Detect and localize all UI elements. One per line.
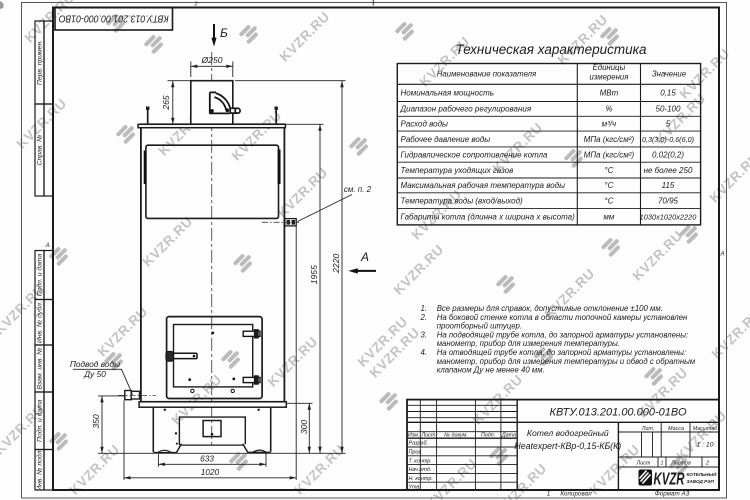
svg-text:Подп. и дата: Подп. и дата — [36, 399, 44, 442]
svg-text:2: 2 — [705, 461, 709, 467]
svg-text:1: 1 — [661, 461, 664, 467]
svg-text:Подвод воды: Подвод воды — [70, 359, 120, 369]
svg-text:Инв. № подл.: Инв. № подл. — [36, 449, 44, 491]
svg-text:1020: 1020 — [201, 467, 220, 477]
svg-text:0,02(0,2): 0,02(0,2) — [652, 150, 684, 159]
svg-text:115: 115 — [662, 181, 675, 190]
svg-text:°С: °С — [604, 197, 613, 206]
svg-text:А: А — [720, 252, 725, 258]
svg-text:KVZR: KVZR — [654, 469, 685, 489]
svg-text:манометр, прибор для измерения: манометр, прибор для измерения температу… — [437, 357, 696, 366]
svg-text:Температура уходящих газов: Температура уходящих газов — [401, 166, 514, 175]
svg-text:А: А — [45, 243, 50, 249]
svg-text:Утв.: Утв. — [408, 485, 421, 491]
svg-text:Единицы: Единицы — [593, 63, 626, 72]
svg-text:КОТЕЛЬНЫЙ: КОТЕЛЬНЫЙ — [687, 470, 718, 477]
svg-text:Лист: Лист — [636, 461, 651, 467]
svg-text:Номинальная мощность: Номинальная мощность — [401, 89, 494, 98]
svg-text:633: 633 — [200, 454, 214, 464]
svg-text:МВт: МВт — [600, 89, 619, 98]
svg-text:Температура воды (вход/выход): Температура воды (вход/выход) — [401, 197, 523, 206]
svg-text:Разраб.: Разраб. — [409, 441, 429, 447]
svg-text:1955: 1955 — [309, 265, 319, 284]
svg-text:А: А — [360, 250, 369, 264]
svg-text:мм: мм — [603, 212, 614, 221]
svg-text:КВТУ.013.201.00.000-01ВО: КВТУ.013.201.00.000-01ВО — [549, 407, 686, 419]
svg-text:300: 300 — [299, 420, 309, 435]
svg-text:0,3(3,0)-0,6(6,0): 0,3(3,0)-0,6(6,0) — [642, 135, 694, 144]
svg-text:Габариты котла (длинна х ширин: Габариты котла (длинна х ширина х высота… — [401, 212, 576, 221]
svg-text:1030х1020х2220: 1030х1020х2220 — [640, 212, 698, 221]
svg-text:2.: 2. — [419, 313, 427, 322]
svg-text:2220: 2220 — [331, 254, 341, 274]
svg-text:Ø250: Ø250 — [200, 55, 222, 65]
svg-text:Б: Б — [220, 26, 228, 40]
svg-text:манометр, прибор для измерения: манометр, прибор для измерения температу… — [437, 339, 620, 348]
svg-text:0,15: 0,15 — [660, 89, 676, 98]
svg-text:°С: °С — [604, 166, 613, 175]
svg-text:Нач.отд.: Нач.отд. — [409, 467, 432, 473]
svg-text:4.: 4. — [420, 348, 427, 357]
svg-text:№ докум.: № докум. — [444, 433, 468, 439]
svg-text:МПа (кгс/см²): МПа (кгс/см²) — [584, 150, 635, 159]
svg-text:ЗАВОД РЭП: ЗАВОД РЭП — [687, 479, 715, 484]
svg-text:Диапазон рабочего регулировани: Диапазон рабочего регулирования — [400, 105, 532, 114]
svg-text:Все размеры для справок, допус: Все размеры для справок, допустимые откл… — [437, 304, 663, 313]
svg-text:МПа (кгс/см²): МПа (кгс/см²) — [584, 135, 635, 144]
svg-text:см. п. 2: см. п. 2 — [344, 185, 372, 194]
svg-text:КВТУ.013.201.00.000-01ВО: КВТУ.013.201.00.000-01ВО — [58, 12, 168, 23]
svg-text:50-100: 50-100 — [656, 105, 681, 114]
svg-text:Инв. № дубл.: Инв. № дубл. — [36, 301, 44, 343]
svg-text:Расход воды: Расход воды — [401, 120, 448, 129]
svg-text:не более 250: не более 250 — [644, 166, 693, 175]
svg-text:1 : 10: 1 : 10 — [696, 442, 713, 449]
svg-text:2: 2 — [193, 2, 197, 8]
svg-text:265: 265 — [161, 95, 171, 111]
svg-text:Копировал: Копировал — [560, 491, 592, 498]
svg-text:На подводящей трубе котла, до: На подводящей трубе котла, до запорной а… — [437, 330, 688, 339]
svg-text:Справ. №: Справ. № — [37, 135, 44, 166]
svg-text:1.: 1. — [420, 304, 427, 313]
svg-text:Техническая характеристика: Техническая характеристика — [455, 42, 647, 57]
svg-text:Рабочее давление воды: Рабочее давление воды — [401, 135, 491, 144]
svg-text:клапаном Ду не менее 40 мм.: клапаном Ду не менее 40 мм. — [437, 366, 545, 375]
svg-text:проотборный штуцер.: проотборный штуцер. — [437, 322, 522, 331]
svg-text:70/95: 70/95 — [658, 197, 679, 206]
svg-text:350: 350 — [91, 414, 101, 429]
svg-text:Пров.: Пров. — [409, 450, 423, 456]
svg-text:На боковой стенке котла в обла: На боковой стенке котла в области топочн… — [437, 313, 688, 322]
svg-text:5: 5 — [666, 120, 671, 129]
svg-text:Лист: Лист — [420, 433, 435, 439]
svg-text:Значение: Значение — [652, 70, 687, 79]
svg-text:Ду 50: Ду 50 — [83, 369, 106, 379]
svg-text:Масса: Масса — [668, 426, 684, 432]
svg-text:°С: °С — [604, 181, 613, 190]
svg-text:Листов: Листов — [670, 461, 691, 467]
svg-text:На отводящей трубе котла, до з: На отводящей трубе котла, до запорной ар… — [437, 348, 686, 357]
svg-text:Масштаб: Масштаб — [693, 426, 718, 432]
svg-text:Максимальная рабочая температу: Максимальная рабочая температура воды — [401, 181, 566, 190]
svg-text:Н. контр.: Н. контр. — [409, 476, 433, 482]
svg-text:3.: 3. — [420, 330, 427, 339]
svg-text:измерения: измерения — [589, 73, 629, 82]
svg-text:Наименование показателя: Наименование показателя — [437, 70, 537, 79]
svg-text:Подп.: Подп. — [481, 433, 495, 439]
svg-text:Т. контр.: Т. контр. — [409, 458, 432, 464]
svg-text:Гидравлическое сопротивление к: Гидравлическое сопротивление котла — [401, 150, 549, 159]
svg-text:1: 1 — [547, 491, 551, 498]
svg-text:Котел водогрейный: Котел водогрейный — [527, 428, 609, 438]
svg-text:Подп. и дата: Подп. и дата — [36, 254, 44, 297]
svg-text:Heatexpert-КВр-0,15-КБ(К): Heatexpert-КВр-0,15-КБ(К) — [514, 441, 621, 451]
svg-text:Лит.: Лит. — [641, 426, 655, 432]
svg-text:м³/ч: м³/ч — [602, 120, 617, 129]
svg-text:Перв. примен.: Перв. примен. — [37, 40, 44, 85]
svg-text:Взам. инв. №: Взам. инв. № — [37, 347, 44, 389]
svg-text:Дата: Дата — [501, 433, 516, 439]
svg-text:%: % — [605, 105, 612, 114]
svg-text:Формат А3: Формат А3 — [655, 491, 690, 498]
svg-text:Изм.: Изм. — [408, 433, 420, 439]
